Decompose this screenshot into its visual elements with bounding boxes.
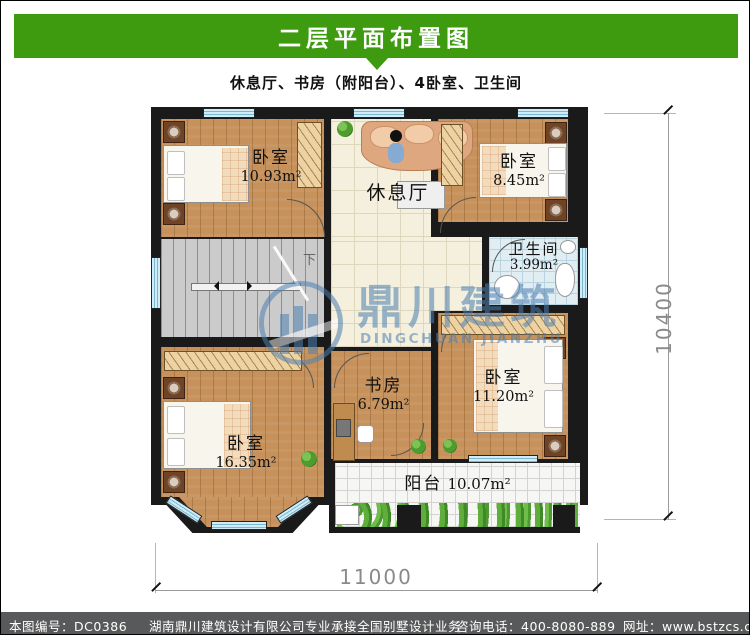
balcony-plants-icon xyxy=(337,503,578,527)
title-banner: 二层平面布置图 xyxy=(14,14,738,58)
balcony-post-icon xyxy=(553,505,575,527)
footer-drawing-number: 本图编号：DC0386 xyxy=(9,616,127,635)
person-body-icon xyxy=(388,143,404,163)
pillow-icon xyxy=(167,177,185,201)
wardrobe-icon xyxy=(164,351,302,371)
floor-plan-page: 二层平面布置图 休息厅、书房（附阳台）、4卧室、卫生间 xyxy=(0,0,750,635)
nightstand-icon xyxy=(163,377,185,399)
stair-arrow-icon xyxy=(209,281,219,291)
room-label-balcony: 阳台 10.07m² xyxy=(335,475,580,495)
pillow-icon xyxy=(167,151,185,175)
dimension-line-bottom xyxy=(155,590,598,591)
footer-website: 网址：www.bstzcs.com xyxy=(623,616,750,635)
footer-bar: 本图编号：DC0386 湖南鼎川建筑设计有限公司专业承接全国别墅设计业务 咨询电… xyxy=(1,612,749,635)
nightstand-icon xyxy=(545,199,567,221)
page-subtitle: 休息厅、书房（附阳台）、4卧室、卫生间 xyxy=(1,72,750,93)
footer-phone: 咨询电话：400-8080-889 xyxy=(456,616,616,635)
room-hall-mid xyxy=(331,237,482,311)
balcony-planter-icon xyxy=(335,505,359,525)
room-hall-low xyxy=(331,311,431,347)
person-icon xyxy=(390,130,402,142)
pillow-icon xyxy=(167,438,185,466)
stairs-down-label: 下 xyxy=(303,249,316,268)
pillow-icon xyxy=(167,406,185,434)
stair-rail xyxy=(191,283,301,291)
floor-plan: 下 卧室 10.93m xyxy=(151,107,588,533)
wardrobe-icon xyxy=(441,315,565,335)
page-title: 二层平面布置图 xyxy=(278,19,474,53)
plant-icon xyxy=(337,121,353,137)
window-top-left-icon xyxy=(203,108,255,118)
nightstand-icon xyxy=(545,122,567,144)
bay-window-center-icon xyxy=(211,521,267,530)
window-balcony-icon xyxy=(468,455,538,463)
wardrobe-icon xyxy=(441,124,463,186)
sofa-cushion-icon xyxy=(404,124,434,144)
plant-icon xyxy=(411,439,426,454)
room-label-bedroom-bottom-right: 卧室 11.20m² xyxy=(451,369,556,405)
nightstand-icon xyxy=(544,435,566,457)
dimension-width-label: 11000 xyxy=(321,565,431,589)
sink-icon xyxy=(494,275,520,299)
window-top-right-icon xyxy=(517,108,569,118)
window-top-center-icon xyxy=(353,108,405,118)
window-bathroom-icon xyxy=(579,247,588,299)
room-label-bedroom-top-left: 卧室 10.93m² xyxy=(211,149,331,185)
dimension-height-label: 10400 xyxy=(652,263,676,373)
nightstand-icon xyxy=(163,471,185,493)
room-label-hall: 休息厅 xyxy=(343,183,453,205)
plant-icon xyxy=(301,451,317,467)
computer-icon xyxy=(336,419,351,437)
balcony-post-icon xyxy=(397,505,421,527)
room-label-bathroom: 卫生间 3.99m² xyxy=(491,241,577,274)
room-label-study: 书房 6.79m² xyxy=(336,377,431,413)
room-label-bedroom-bottom-left: 卧室 16.35m² xyxy=(191,435,301,471)
chair-icon xyxy=(357,425,374,443)
plant-icon xyxy=(443,439,457,453)
room-label-bedroom-top-right: 卧室 8.45m² xyxy=(469,153,569,189)
stair-arrow-icon xyxy=(247,281,257,291)
nightstand-icon xyxy=(163,203,185,225)
footer-company: 湖南鼎川建筑设计有限公司专业承接全国别墅设计业务 xyxy=(149,616,461,635)
window-left-stairs-icon xyxy=(151,257,161,309)
banner-pointer-icon xyxy=(366,58,388,70)
nightstand-icon xyxy=(163,121,185,143)
